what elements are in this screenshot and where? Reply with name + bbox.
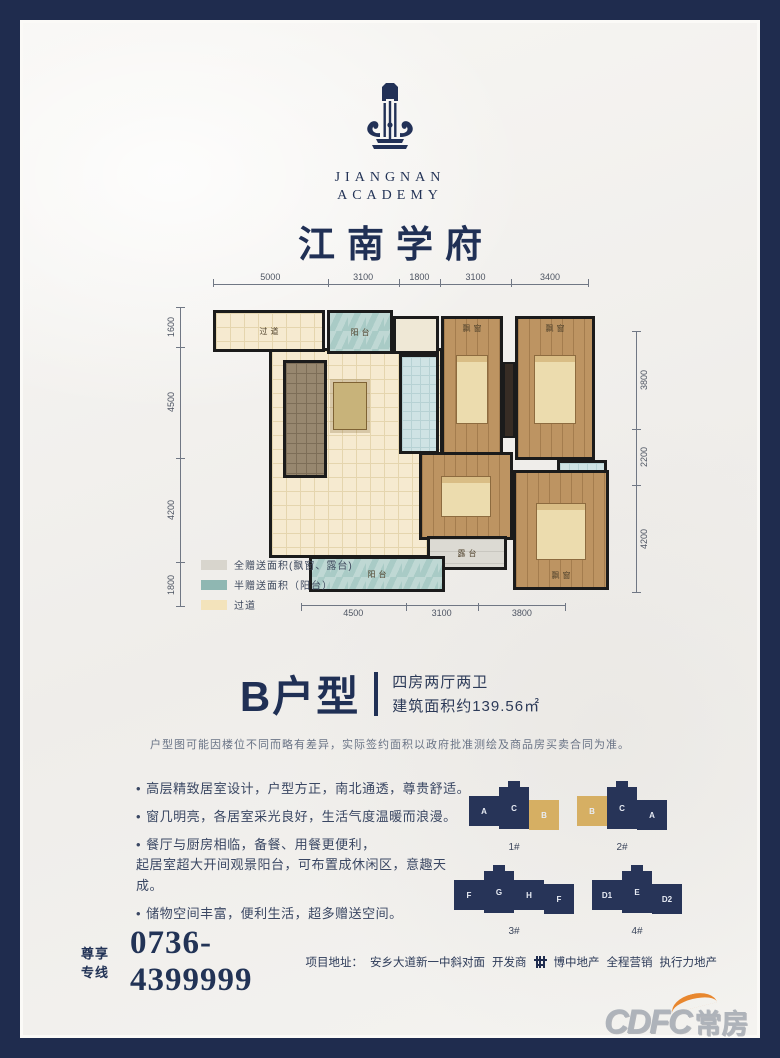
bed-1	[456, 355, 487, 424]
legend-item: 过道	[201, 597, 353, 612]
brand-en-line2: ACADEMY	[23, 187, 757, 205]
unit-type-desc: 四房两厅两卫	[392, 671, 540, 692]
building-block-2: BCA2#	[577, 785, 667, 853]
building-unit-D2: D2	[652, 884, 682, 914]
building-unit-H: H	[514, 880, 544, 910]
dimension-value: 4200	[166, 500, 176, 520]
legend-swatch	[201, 560, 227, 570]
dimension-value: 1800	[166, 575, 176, 595]
developer-label: 开发商	[492, 954, 527, 970]
room-label-corridor: 过道	[257, 326, 282, 337]
building-unit-F: F	[454, 880, 484, 910]
legend-swatch	[201, 580, 227, 590]
developer-name: 博中地产	[554, 954, 600, 970]
building-caption: 1#	[508, 842, 519, 853]
dimension-value: 3800	[512, 608, 532, 618]
legend-item: 半赠送面积（阳台）	[201, 577, 353, 592]
building-unit-G: G	[484, 871, 514, 913]
dimension-value: 1600	[166, 317, 176, 337]
room-label-terrace: 露台	[455, 548, 480, 559]
legend-swatch	[201, 600, 227, 610]
dimension-segment: 3800	[628, 331, 644, 429]
plan-legend: 全赠送面积(飘窗、露台)半赠送面积（阳台）过道	[201, 557, 353, 617]
floor-plan-section: 50003100180031003400 1600450042001800 38…	[158, 269, 670, 641]
dimension-value: 3800	[639, 370, 649, 390]
dining-table	[333, 382, 367, 430]
brand-name-english: JIANGNAN ACADEMY	[23, 169, 757, 204]
bed-2	[534, 355, 575, 424]
address-value: 安乡大道新一中斜对面	[370, 954, 485, 970]
building-unit-A: A	[469, 796, 499, 826]
legend-label: 半赠送面积（阳台）	[234, 577, 333, 592]
dimension-value: 4500	[166, 392, 176, 412]
room-corridor: 过道	[213, 310, 325, 352]
brand-en-line1: JIANGNAN	[23, 169, 757, 187]
floor-plan-drawing: 过道 阳台 飘窗 飘窗	[213, 302, 613, 592]
room-label-balcony-top: 阳台	[348, 327, 373, 338]
dimension-segment: 4500	[172, 347, 188, 459]
room-label-bay-window-3: 飘窗	[516, 570, 606, 581]
poster-page: JIANGNAN ACADEMY 江南学府 500031001800310034…	[0, 0, 780, 1058]
room-bedroom-3	[419, 452, 513, 540]
building-units: FGHF	[454, 869, 574, 921]
room-label-bay-window-1: 飘窗	[444, 323, 500, 334]
unit-area-desc: 建筑面积约139.56㎡	[392, 695, 540, 716]
watermark-text-cn: 常房	[694, 1002, 748, 1041]
dimension-row-top: 50003100180031003400	[213, 271, 589, 287]
dimension-segment: 5000	[213, 271, 328, 287]
agency-name: 执行力地产	[660, 954, 718, 970]
dimension-value: 1800	[409, 272, 429, 282]
room-bedroom-2: 飘窗	[515, 316, 595, 460]
dimension-column-left: 1600450042001800	[172, 307, 188, 607]
building-block-1: ACB1#	[469, 785, 559, 853]
poster-inner-panel: JIANGNAN ACADEMY 江南学府 500031001800310034…	[20, 20, 760, 1038]
disclaimer-text: 户型图可能因楼位不同而略有差异，实际签约面积以政府批准测绘及商品房买卖合同为准。	[23, 736, 757, 752]
dimension-value: 3100	[466, 272, 486, 282]
room-balcony-top: 阳台	[327, 310, 393, 354]
address-label: 项目地址：	[306, 954, 364, 970]
dimension-value: 5000	[260, 272, 280, 282]
building-caption: 2#	[616, 842, 627, 853]
developer-logo-icon	[534, 956, 547, 968]
building-unit-C: C	[607, 787, 637, 829]
marketing-text: 全程营销	[607, 954, 653, 970]
building-unit-B: B	[577, 796, 607, 826]
building-unit-B: B	[529, 800, 559, 830]
dimension-segment: 1800	[172, 562, 188, 607]
unit-description: 四房两厅两卫 建筑面积约139.56㎡	[392, 671, 540, 716]
feature-item: 窗几明亮，各居室采光良好，生活气度温暖而浪漫。	[136, 807, 471, 827]
dimension-value: 4200	[639, 529, 649, 549]
contact-bar: 尊享专线 0736-4399999 项目地址：安乡大道新一中斜对面 开发商 博中…	[81, 925, 717, 999]
dimension-segment: 4200	[172, 458, 188, 562]
unit-divider	[374, 672, 378, 716]
brand-header: JIANGNAN ACADEMY 江南学府	[23, 81, 757, 268]
room-kitchen	[283, 360, 327, 478]
wardrobe-column	[503, 362, 515, 438]
dimension-segment: 4200	[628, 485, 644, 593]
brand-name-chinese: 江南学府	[23, 214, 757, 268]
room-label-balcony-bottom: 阳台	[365, 569, 390, 580]
building-unit-F: F	[544, 884, 574, 914]
building-units: BCA	[577, 785, 667, 837]
room-label-bay-window-2: 飘窗	[518, 323, 592, 334]
dimension-column-right: 380022004200	[628, 331, 644, 593]
dimension-segment: 3100	[406, 603, 478, 619]
unit-info: B户型 四房两厅两卫 建筑面积约139.56㎡	[23, 663, 757, 724]
building-logo-icon	[346, 81, 434, 163]
building-unit-C: C	[499, 787, 529, 829]
dimension-value: 3100	[432, 608, 452, 618]
room-bathroom-1	[399, 354, 439, 454]
building-units: D1ED2	[592, 869, 682, 921]
project-info: 项目地址：安乡大道新一中斜对面 开发商 博中地产 全程营销 执行力地产	[306, 954, 718, 970]
unit-name: B户型	[240, 663, 360, 724]
dimension-value: 3400	[540, 272, 560, 282]
feature-item: 储物空间丰富，便利生活，超多赠送空间。	[136, 904, 471, 924]
dimension-segment: 2200	[628, 429, 644, 486]
dimension-segment: 3800	[478, 603, 566, 619]
building-units: ACB	[469, 785, 559, 837]
bed-3	[441, 476, 490, 517]
building-unit-E: E	[622, 871, 652, 913]
hotline-label: 尊享专线	[81, 943, 122, 981]
dimension-segment: 3100	[440, 271, 511, 287]
dimension-value: 2200	[639, 447, 649, 467]
feature-item: 餐厅与厨房相临，备餐、用餐更便利， 起居室超大开间观景阳台，可布置成休闲区，意趣…	[136, 835, 471, 895]
legend-item: 全赠送面积(飘窗、露台)	[201, 557, 353, 572]
legend-label: 过道	[234, 597, 256, 612]
dimension-value: 3100	[353, 272, 373, 282]
dimension-segment: 3400	[511, 271, 589, 287]
building-unit-A: A	[637, 800, 667, 830]
legend-label: 全赠送面积(飘窗、露台)	[234, 557, 353, 572]
hotline-number: 0736-4399999	[130, 925, 280, 999]
room-entry	[393, 316, 439, 354]
feature-item: 高层精致居室设计，户型方正，南北通透，尊贵舒适。	[136, 779, 471, 799]
room-bedroom-1: 飘窗	[441, 316, 503, 460]
dimension-segment: 3100	[328, 271, 399, 287]
dimension-segment: 1600	[172, 307, 188, 347]
building-unit-D1: D1	[592, 880, 622, 910]
building-diagrams: ACB1#BCA2#FGHF3#D1ED24#	[448, 785, 688, 937]
bed-master	[536, 503, 586, 560]
site-watermark: CDFC 常房	[604, 1002, 748, 1042]
dimension-segment: 1800	[399, 271, 440, 287]
feature-list: 高层精致居室设计，户型方正，南北通透，尊贵舒适。窗几明亮，各居室采光良好，生活气…	[136, 779, 471, 932]
room-bedroom-master: 飘窗	[513, 470, 609, 590]
